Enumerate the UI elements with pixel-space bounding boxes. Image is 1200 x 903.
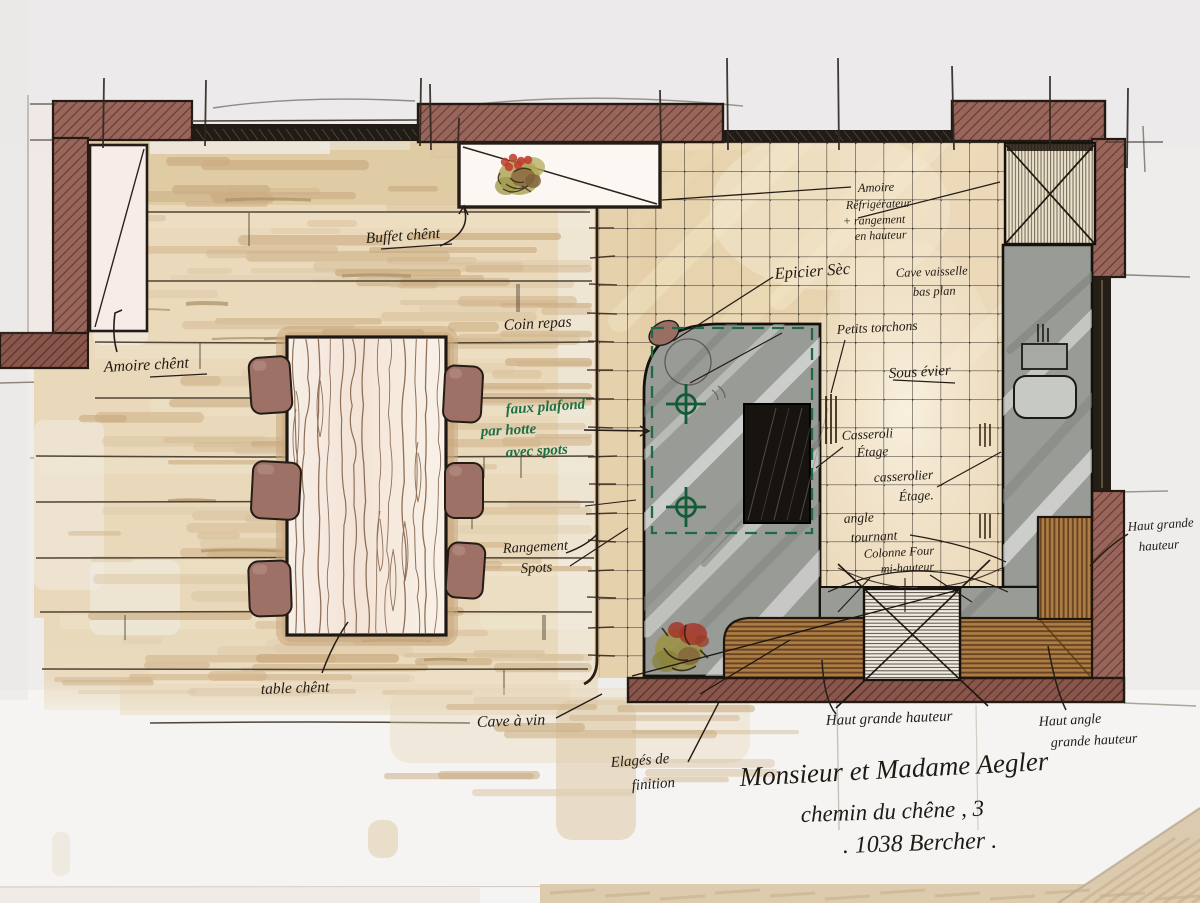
svg-text:Sous évier: Sous évier <box>888 363 951 382</box>
svg-text:tournant: tournant <box>850 528 898 545</box>
svg-text:table chênt: table chênt <box>261 679 331 698</box>
svg-text:Spots: Spots <box>520 559 553 577</box>
svg-text:+ rangement: + rangement <box>843 212 907 228</box>
svg-text:Cave vaisselle: Cave vaisselle <box>896 263 969 280</box>
svg-text:Étage.: Étage. <box>897 487 934 504</box>
svg-text:en hauteur: en hauteur <box>855 227 907 243</box>
svg-text:hauteur: hauteur <box>1138 536 1180 554</box>
svg-text:casserolier: casserolier <box>873 467 934 485</box>
svg-text:. 1038 Bercher .: . 1038 Bercher . <box>842 828 997 859</box>
svg-text:avec spots: avec spots <box>505 442 568 461</box>
svg-text:Étage: Étage <box>855 443 888 460</box>
svg-text:par hotte: par hotte <box>478 421 537 440</box>
svg-text:Réfrigérateur: Réfrigérateur <box>845 196 912 212</box>
svg-text:Coin repas: Coin repas <box>503 313 572 334</box>
svg-text:finition: finition <box>631 775 675 794</box>
svg-text:Amoire: Amoire <box>857 180 895 195</box>
svg-text:mi-hauteur: mi-hauteur <box>880 559 934 576</box>
svg-text:angle: angle <box>843 509 874 526</box>
svg-text:Casseroli: Casseroli <box>841 425 893 443</box>
svg-text:bas plan: bas plan <box>913 284 956 299</box>
svg-text:Cave à vin: Cave à vin <box>477 712 546 731</box>
